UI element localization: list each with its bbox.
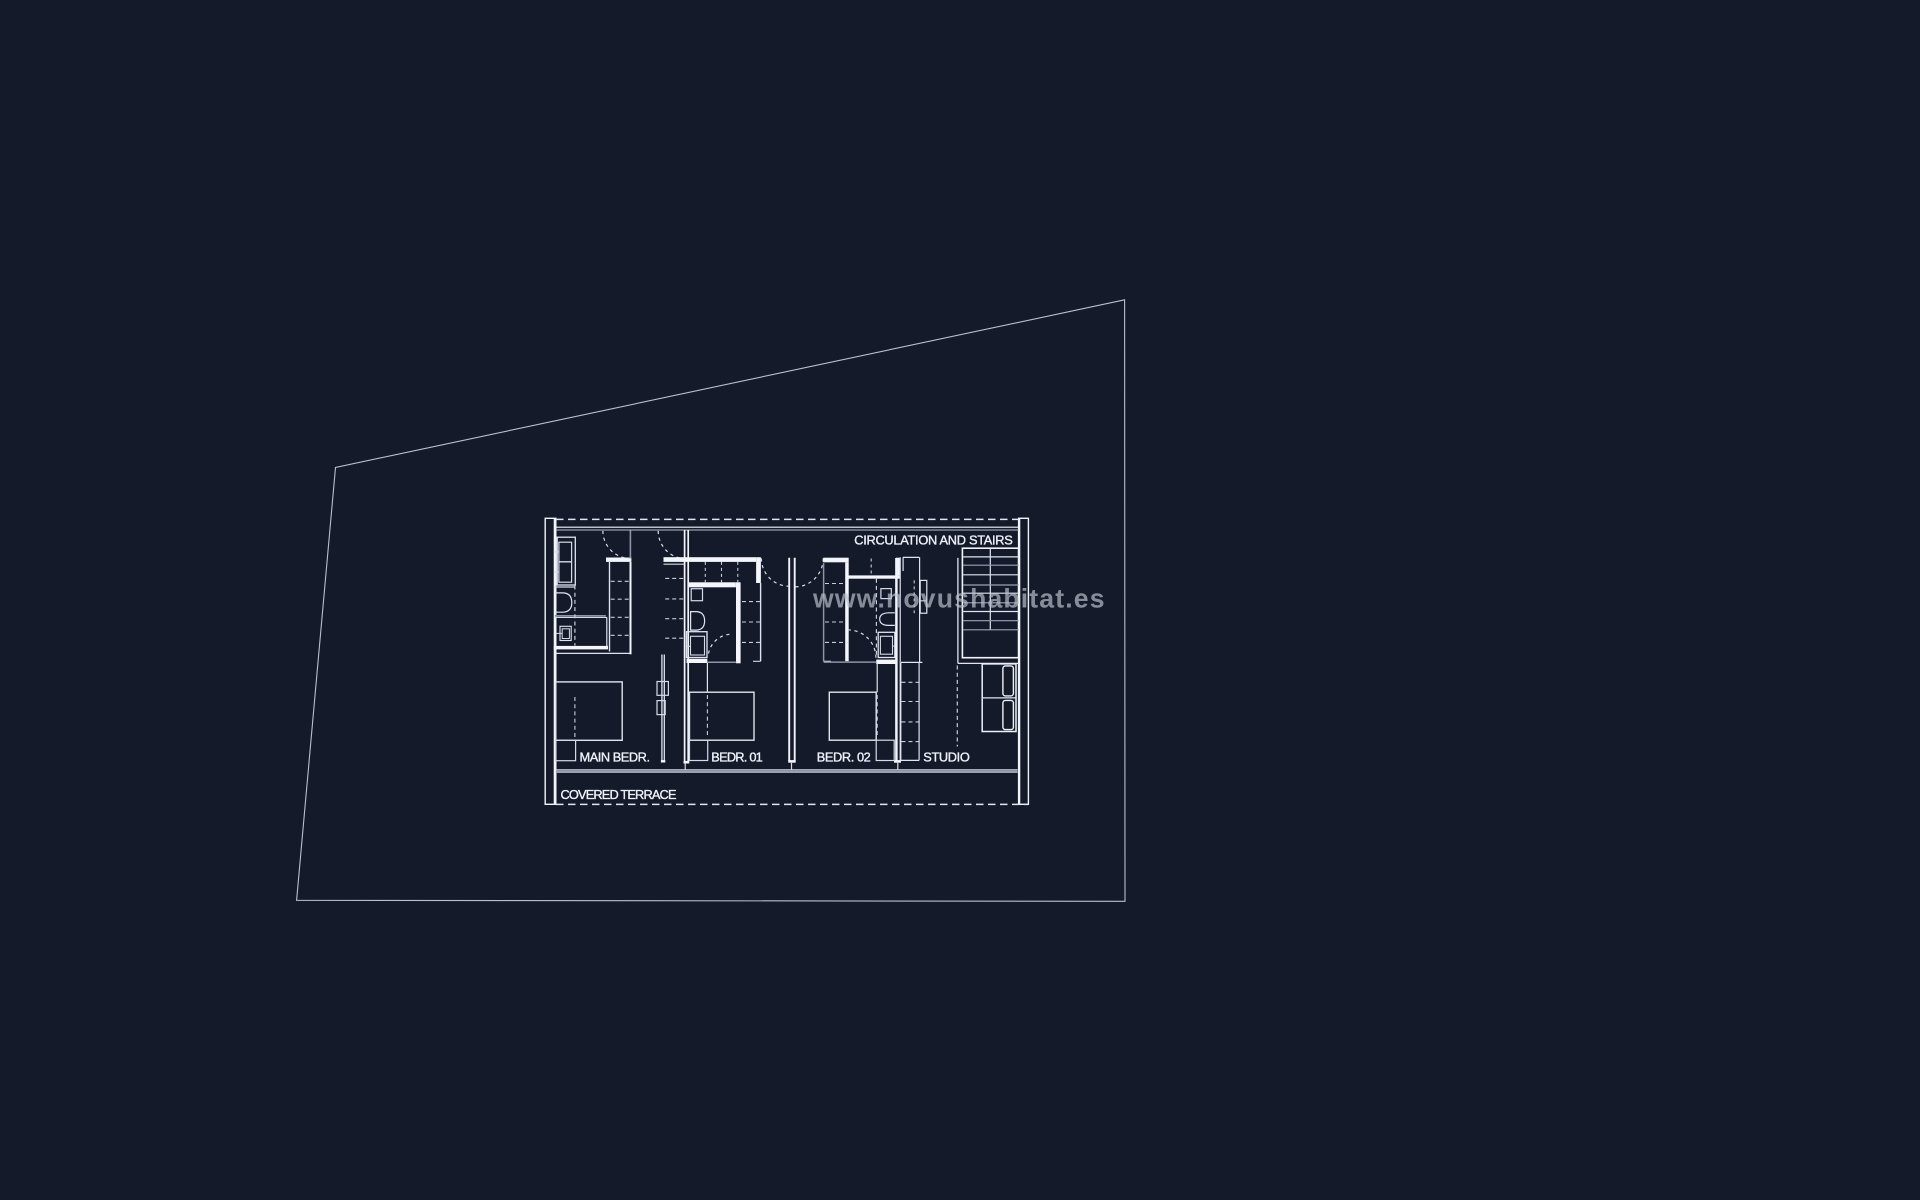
svg-text:www.novushabitat.es: www.novushabitat.es bbox=[812, 584, 1105, 614]
svg-text:STUDIO: STUDIO bbox=[923, 750, 970, 765]
svg-text:BEDR. 02: BEDR. 02 bbox=[817, 750, 871, 765]
svg-text:BEDR. 01: BEDR. 01 bbox=[711, 750, 763, 765]
svg-text:CIRCULATION AND STAIRS: CIRCULATION AND STAIRS bbox=[854, 533, 1013, 548]
svg-text:MAIN BEDR.: MAIN BEDR. bbox=[580, 750, 651, 765]
svg-text:COVERED TERRACE: COVERED TERRACE bbox=[561, 787, 677, 802]
